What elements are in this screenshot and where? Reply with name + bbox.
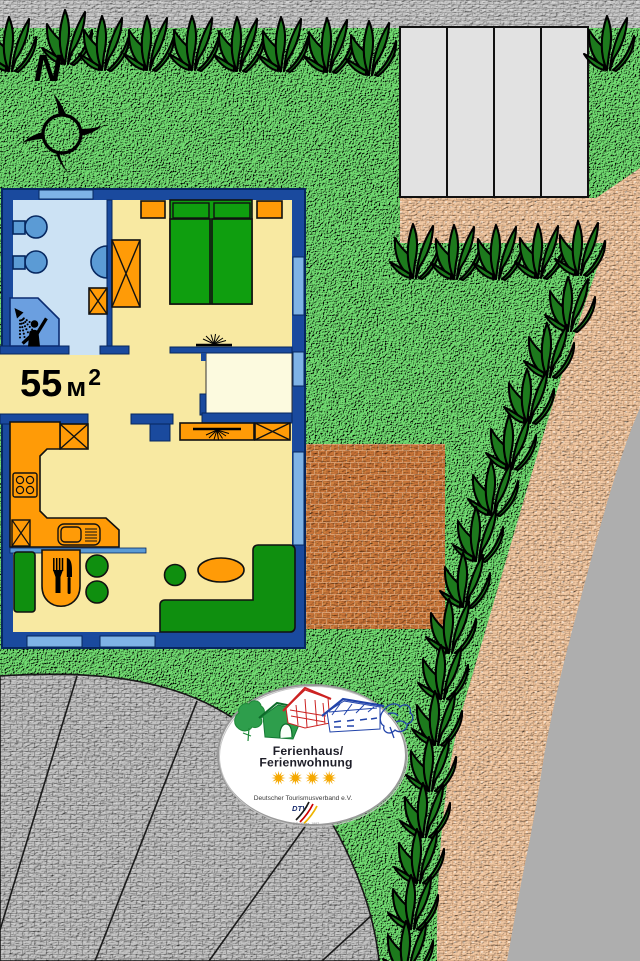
svg-text:N: N <box>34 48 63 90</box>
svg-text:DTV-Klass. 1997: DTV-Klass. 1997 <box>293 822 319 826</box>
svg-text:Deutscher Tourismusverband e.V: Deutscher Tourismusverband e.V. <box>254 795 353 802</box>
svg-text:Ferienwohnung: Ferienwohnung <box>259 756 352 770</box>
